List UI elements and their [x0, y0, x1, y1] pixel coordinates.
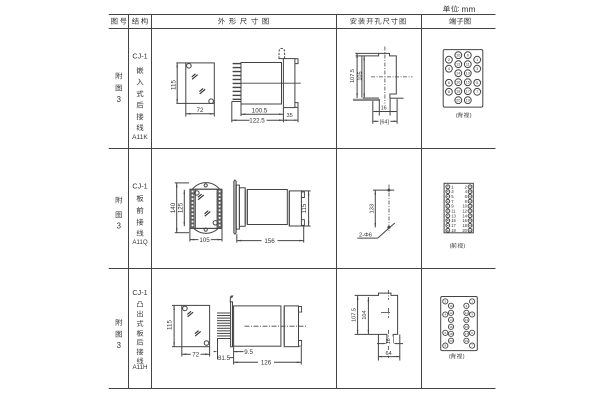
- svg-text:mm: mm: [462, 4, 476, 14]
- svg-text:18: 18: [456, 90, 460, 94]
- svg-text:(: (: [450, 244, 452, 250]
- svg-text:4: 4: [448, 67, 450, 71]
- svg-text:72: 72: [192, 351, 199, 358]
- svg-text:133: 133: [370, 204, 376, 214]
- svg-text:(: (: [449, 354, 451, 360]
- svg-text:6: 6: [448, 81, 450, 85]
- svg-text:(: (: [456, 113, 458, 119]
- svg-text:64: 64: [385, 351, 391, 357]
- svg-text:14: 14: [449, 318, 453, 322]
- svg-text:19: 19: [466, 99, 470, 103]
- svg-text:): ): [463, 354, 465, 360]
- svg-text:A11Q: A11Q: [132, 239, 148, 246]
- svg-text:A11K: A11K: [132, 134, 148, 141]
- svg-text:10: 10: [449, 304, 453, 308]
- svg-text:12: 12: [449, 311, 453, 315]
- svg-text:2: 2: [448, 58, 450, 62]
- svg-text:14: 14: [456, 72, 460, 76]
- svg-text:): ): [470, 113, 472, 119]
- svg-text:107.5: 107.5: [351, 308, 357, 322]
- svg-text:[64]: [64]: [380, 119, 389, 125]
- svg-text:156: 156: [264, 238, 275, 245]
- svg-text:9: 9: [467, 54, 469, 58]
- svg-text:20: 20: [462, 228, 467, 233]
- svg-text:126: 126: [261, 360, 272, 367]
- svg-text:3: 3: [476, 67, 478, 71]
- svg-text:140: 140: [170, 202, 177, 213]
- svg-text:5: 5: [476, 81, 478, 85]
- svg-text:31.5: 31.5: [218, 355, 231, 362]
- svg-text:CJ-1: CJ-1: [132, 51, 147, 60]
- svg-text:9.5: 9.5: [244, 349, 253, 356]
- svg-text:CJ-1: CJ-1: [132, 182, 147, 191]
- svg-text:8: 8: [448, 90, 450, 94]
- svg-text:17: 17: [466, 90, 470, 94]
- svg-text:19: 19: [451, 228, 456, 233]
- svg-text:72: 72: [197, 107, 204, 114]
- svg-text:1: 1: [476, 58, 478, 62]
- svg-text:16: 16: [449, 325, 453, 329]
- svg-text:): ): [463, 244, 465, 250]
- svg-text:10: 10: [456, 54, 460, 58]
- svg-text:2-Φ6: 2-Φ6: [359, 232, 372, 238]
- svg-text:125: 125: [178, 202, 185, 213]
- svg-text:35: 35: [286, 113, 292, 119]
- svg-text:105: 105: [357, 71, 363, 80]
- svg-text:16: 16: [381, 105, 387, 111]
- svg-text:11: 11: [466, 63, 470, 67]
- svg-text:3: 3: [117, 341, 121, 350]
- svg-text:115: 115: [302, 203, 308, 213]
- svg-text:A11H: A11H: [132, 364, 147, 371]
- svg-text:13: 13: [465, 318, 469, 322]
- svg-text:3: 3: [117, 95, 121, 104]
- svg-text:16: 16: [456, 81, 460, 85]
- svg-text:105: 105: [199, 237, 210, 244]
- svg-text:13: 13: [466, 72, 470, 76]
- svg-text:3: 3: [117, 221, 121, 230]
- svg-text:115: 115: [166, 320, 173, 330]
- svg-text:17: 17: [465, 332, 469, 336]
- svg-text:122.5: 122.5: [249, 117, 265, 124]
- svg-text:104: 104: [362, 310, 368, 319]
- svg-text:107.5: 107.5: [350, 69, 356, 83]
- svg-text:20: 20: [456, 99, 460, 103]
- svg-text:7: 7: [476, 90, 478, 94]
- svg-text:CJ-1: CJ-1: [132, 288, 147, 297]
- svg-text:12: 12: [456, 63, 460, 67]
- svg-text::: :: [457, 4, 459, 13]
- svg-text:11: 11: [465, 311, 468, 315]
- svg-text:20: 20: [449, 339, 453, 343]
- svg-text:18: 18: [449, 332, 453, 336]
- svg-text:16: 16: [386, 338, 392, 344]
- svg-text:100.5: 100.5: [252, 107, 268, 114]
- svg-text:15: 15: [466, 81, 470, 85]
- svg-text:115: 115: [171, 80, 178, 90]
- svg-text:15: 15: [465, 325, 469, 329]
- svg-text:19: 19: [465, 339, 469, 343]
